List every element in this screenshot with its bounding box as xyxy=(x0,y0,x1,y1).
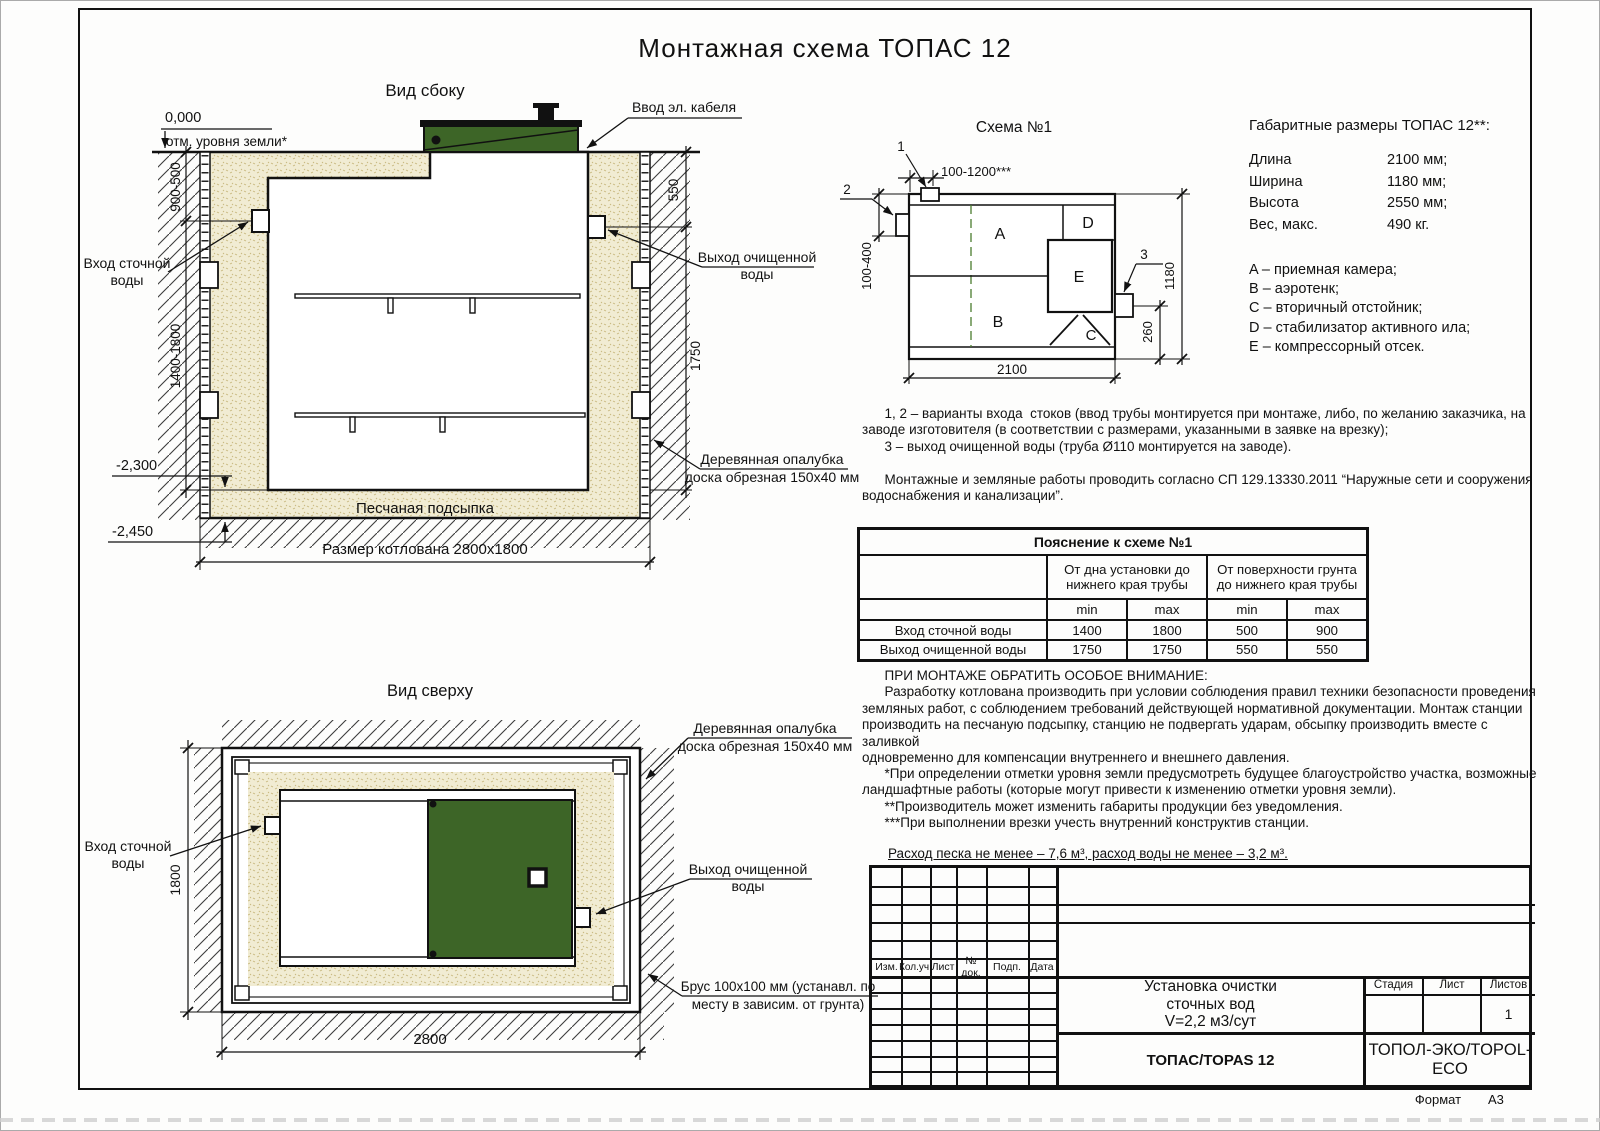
dim-1180: 1180 xyxy=(1162,262,1177,290)
formwork-right xyxy=(640,152,650,518)
dim-1750: 1750 xyxy=(688,341,703,371)
callout-1: 1 xyxy=(897,139,905,154)
tv-beam-label-2: месту в зависим. от грунта) xyxy=(692,997,864,1012)
dim-100-400: 100-400 xyxy=(859,242,874,290)
rev-col-list: Лист xyxy=(930,958,956,976)
tv-lid xyxy=(428,800,572,958)
tv-inlet-stub xyxy=(265,817,280,834)
dim-1800: 1800 xyxy=(167,864,183,895)
table-group2: От поверхности грунта до нижнего края тр… xyxy=(1207,555,1368,599)
legend-item: A – приемная камера; xyxy=(1249,262,1549,281)
sheets-value: 1 xyxy=(1482,996,1535,1032)
dim-2100: 2100 xyxy=(997,362,1027,377)
tv-hatch-right xyxy=(640,748,674,1012)
tank-lid xyxy=(420,103,582,152)
dim-900-500: 900-500 xyxy=(168,162,183,212)
ground-note-label: отм. уровня земли* xyxy=(166,134,288,149)
tv-inlet-label-1: Вход сточной xyxy=(85,838,172,854)
notes-paragraph: 1, 2 – варианты входа стоков (ввод трубы… xyxy=(862,406,1546,504)
earth-hatch-right xyxy=(650,152,690,520)
compartment-legend: A – приемная камера; B – аэротенк; C – в… xyxy=(1249,262,1549,358)
inlet-label-2: воды xyxy=(111,272,144,288)
dim-550: 550 xyxy=(666,179,681,202)
tv-hatch-left xyxy=(194,748,222,1012)
stage-label: Стадия xyxy=(1365,976,1422,994)
inlet-pipe-stub xyxy=(252,210,269,232)
dim-row-length: Длина2100 мм; xyxy=(1249,152,1549,174)
outlet-pipe-stub xyxy=(588,216,605,238)
tv-outlet-stub xyxy=(575,908,590,927)
callout-2: 2 xyxy=(843,182,851,197)
legend-item: B – аэротенк; xyxy=(1249,281,1549,300)
tv-hatch-top xyxy=(222,720,640,748)
explanation-table: Пояснение к схеме №1 От дна установки до… xyxy=(857,527,1369,662)
table-group1: От дна установки до нижнего края трубы xyxy=(1047,555,1207,599)
tv-inlet-label-2: воды xyxy=(112,855,145,871)
sheet-label: Лист xyxy=(1424,976,1480,994)
legend-item: C – вторичный отстойник; xyxy=(1249,300,1549,319)
formwork-label-1: Деревянная опалубка xyxy=(700,451,843,467)
zero-mark-label: 0,000 xyxy=(165,110,201,126)
inlet-label-1: Вход сточной xyxy=(84,255,171,271)
consumption-note: Расход песка не менее – 7,6 м³, расход в… xyxy=(888,846,1288,861)
sheets-label: Листов xyxy=(1482,976,1535,994)
outlet-label-2: воды xyxy=(741,266,774,282)
doc-title-line1: Установка очистки xyxy=(1058,978,1363,996)
overall-dimensions-block: Габаритные размеры ТОПАС 12**: Длина2100… xyxy=(1249,117,1549,358)
dim-row-height: Высота2550 мм; xyxy=(1249,195,1549,217)
dim-260: 260 xyxy=(1140,321,1155,343)
pit-size-label: Размер котлована 2800х1800 xyxy=(322,541,527,558)
formwork-left xyxy=(200,152,210,518)
tv-hatch-cover xyxy=(529,869,546,886)
compartment-c: C xyxy=(1086,327,1097,344)
sand-label: Песчаная подсыпка xyxy=(356,500,495,517)
tv-formwork-callout: Деревянная опалубка доска обрезная 150х4… xyxy=(646,720,852,779)
format-value: А3 xyxy=(1488,1092,1504,1107)
rev-col-ndok: № док. xyxy=(956,958,986,976)
dim-2800: 2800 xyxy=(413,1031,446,1048)
outlet-label-1: Выход очищенной xyxy=(698,249,817,265)
dim-1400-1800: 1400-1800 xyxy=(168,324,183,389)
elevation-0000: 0,000 отм. уровня земли* xyxy=(161,110,288,149)
scheme-inlet-top xyxy=(921,188,939,201)
side-view: Вид сбоку xyxy=(84,81,860,570)
cable-callout: Ввод эл. кабеля xyxy=(587,99,742,148)
rev-col-podp: Подп. xyxy=(986,958,1028,976)
side-view-title: Вид сбоку xyxy=(385,81,465,100)
compartment-d: D xyxy=(1082,215,1094,232)
footnotes-paragraph: *При определении отметки уровня земли пр… xyxy=(862,766,1546,832)
rev-col-data: Дата xyxy=(1028,958,1056,976)
doc-title-line3: V=2,2 м3/сут xyxy=(1058,1013,1363,1031)
tv-outlet-label-2: воды xyxy=(732,878,765,894)
legend-item: D – стабилизатор активного ила; xyxy=(1249,320,1549,339)
format-label: Формат xyxy=(1398,1092,1478,1107)
vent-chimney xyxy=(538,107,554,122)
formwork-label-2: доска обрезная 150х40 мм xyxy=(685,469,860,485)
compartment-e: E xyxy=(1074,269,1085,286)
title-block: Изм. Кол.уч. Лист № док. Подп. Дата Уста… xyxy=(869,865,1532,1088)
doc-title-line2: сточных вод xyxy=(1058,996,1363,1013)
dim-row-width: Ширина1180 мм; xyxy=(1249,174,1549,196)
model-name: ТОПАС/TOPAS 12 xyxy=(1058,1035,1363,1085)
elev-2450-label: -2,450 xyxy=(112,524,153,540)
compartment-b: B xyxy=(993,314,1004,331)
top-view: Вид сверху 1800 2800 xyxy=(85,682,878,1060)
tv-beam-label-1: Брус 100х100 мм (устанавл. по xyxy=(681,979,876,994)
tv-formwork-label-2: доска обрезная 150х40 мм xyxy=(678,738,853,754)
elev-2300-label: -2,300 xyxy=(116,458,157,474)
scheme-outlet xyxy=(1115,294,1133,317)
legend-item: E – компрессорный отсек. xyxy=(1249,339,1549,358)
table-row-inlet: Вход сточной воды 1400 1800 500 900 xyxy=(859,620,1368,640)
rev-col-koluch: Кол.уч. xyxy=(901,958,930,976)
scheme-1: Схема №1 A B C D E 1 2 3 xyxy=(840,119,1190,384)
company-name: ТОПОЛ-ЭКО/TOPOL-ECO xyxy=(1365,1035,1535,1085)
tv-beam-callout: Брус 100х100 мм (устанавл. по месту в за… xyxy=(648,974,878,1012)
compartment-a: A xyxy=(995,226,1006,243)
callout-3: 3 xyxy=(1140,247,1148,262)
table-row-outlet: Выход очищенной воды 1750 1750 550 550 xyxy=(859,640,1368,660)
tv-outlet-label-1: Выход очищенной xyxy=(689,861,808,877)
rev-col-izm: Изм. xyxy=(872,958,901,976)
tv-formwork-label-1: Деревянная опалубка xyxy=(693,720,836,736)
scheme-title: Схема №1 xyxy=(976,119,1052,136)
attention-paragraph: ПРИ МОНТАЖЕ ОБРАТИТЬ ОСОБОЕ ВНИМАНИЕ: Ра… xyxy=(862,668,1546,766)
cable-label: Ввод эл. кабеля xyxy=(632,99,736,115)
overall-title: Габаритные размеры ТОПАС 12**: xyxy=(1249,117,1549,134)
table-title: Пояснение к схеме №1 xyxy=(859,529,1368,556)
tank-body xyxy=(268,152,588,490)
dim-100-1200: 100-1200*** xyxy=(941,164,1011,179)
top-view-title: Вид сверху xyxy=(387,682,474,700)
dim-row-weight: Вес, макс.490 кг. xyxy=(1249,217,1549,239)
scheme-inlet-side xyxy=(896,214,909,236)
